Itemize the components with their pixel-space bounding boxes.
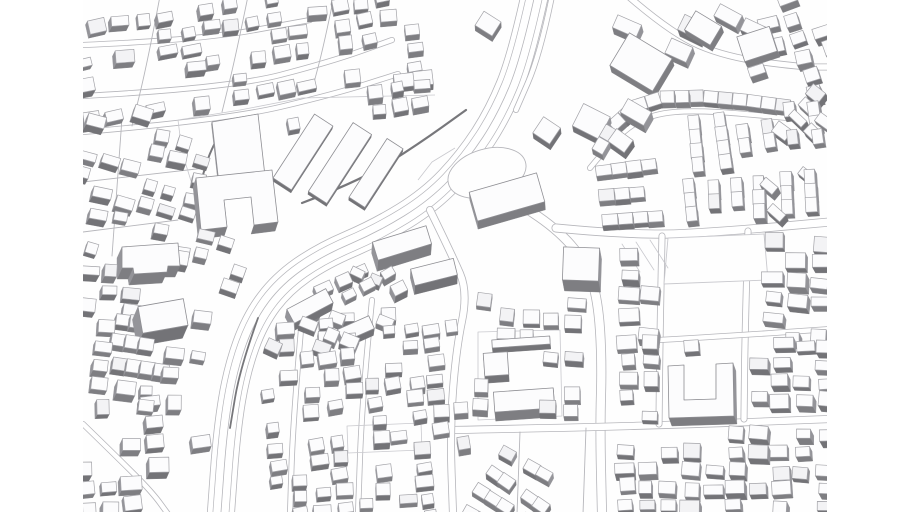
building [543, 313, 558, 330]
building [685, 483, 701, 502]
building [683, 443, 701, 462]
building [384, 376, 401, 396]
building [598, 189, 616, 207]
building [426, 374, 443, 389]
building [99, 286, 117, 301]
building [372, 104, 386, 119]
building [373, 416, 387, 431]
building [376, 483, 391, 501]
building [427, 388, 445, 405]
building [805, 197, 820, 217]
building [108, 15, 129, 32]
building [565, 315, 583, 333]
building [428, 354, 445, 372]
building [642, 335, 659, 355]
building [144, 434, 164, 454]
building [796, 429, 813, 445]
building [680, 500, 702, 512]
building [202, 19, 221, 36]
building [390, 430, 407, 445]
building [771, 480, 793, 499]
building [89, 376, 109, 395]
building [346, 382, 364, 399]
building [476, 292, 492, 311]
building [562, 247, 601, 292]
building [376, 464, 393, 483]
building [642, 411, 658, 424]
building [796, 395, 816, 413]
building [316, 487, 331, 502]
building [120, 439, 141, 457]
building [725, 480, 747, 500]
building [766, 291, 784, 307]
building [692, 157, 706, 178]
building [617, 213, 635, 231]
building [765, 232, 785, 251]
building [415, 474, 434, 492]
building [539, 400, 556, 419]
building [457, 436, 471, 457]
building [112, 211, 128, 226]
building [640, 500, 656, 512]
building [474, 379, 488, 398]
building [616, 335, 638, 354]
building [391, 81, 404, 99]
building [602, 214, 620, 231]
building [483, 352, 509, 384]
building [708, 194, 721, 214]
building [327, 399, 343, 417]
building [317, 351, 337, 370]
building [136, 337, 155, 356]
building [620, 390, 635, 406]
building [292, 475, 307, 492]
building [795, 447, 812, 462]
building [706, 465, 726, 480]
building [704, 485, 725, 499]
building [731, 191, 745, 211]
building [266, 443, 283, 459]
building [620, 372, 639, 390]
building [564, 387, 580, 405]
building [275, 322, 295, 341]
building [771, 374, 791, 392]
building [647, 211, 665, 228]
building [770, 394, 791, 413]
building [272, 44, 291, 64]
building [414, 441, 431, 459]
building [99, 482, 116, 497]
building [620, 248, 639, 266]
building [232, 73, 247, 87]
building [413, 410, 428, 426]
building [293, 491, 307, 508]
building [414, 79, 431, 93]
building [407, 42, 423, 58]
building [343, 365, 362, 385]
building [617, 445, 635, 461]
building [622, 353, 637, 370]
building [661, 500, 678, 512]
building [403, 340, 418, 355]
building [365, 378, 378, 394]
building [362, 33, 378, 51]
building [265, 422, 279, 439]
building [166, 395, 182, 415]
building [113, 380, 137, 403]
building [658, 481, 677, 499]
building [143, 415, 164, 435]
building [661, 447, 679, 463]
building [793, 376, 811, 391]
building [185, 61, 207, 79]
building [434, 404, 450, 423]
building [136, 13, 151, 30]
building [749, 483, 768, 499]
building [404, 24, 419, 41]
building [638, 462, 658, 480]
building [684, 340, 701, 357]
building [245, 16, 259, 32]
building [385, 363, 402, 378]
building [523, 310, 540, 328]
building [421, 493, 434, 510]
building [232, 89, 249, 106]
building [269, 475, 283, 489]
building [564, 405, 579, 421]
building [689, 90, 705, 107]
building [752, 391, 770, 407]
building [260, 389, 274, 404]
building [644, 372, 660, 392]
building [222, 19, 240, 37]
parking-lot [664, 234, 768, 284]
building [787, 293, 810, 314]
building [703, 90, 720, 108]
building [286, 117, 300, 135]
building [191, 310, 213, 331]
building [618, 287, 641, 305]
building [622, 270, 641, 287]
building [567, 298, 587, 313]
building [276, 79, 296, 100]
building [725, 499, 743, 512]
building [432, 421, 449, 440]
building [383, 325, 395, 339]
building [303, 404, 320, 422]
building [407, 389, 424, 407]
building [146, 457, 169, 479]
building [399, 494, 417, 508]
building [338, 502, 354, 512]
building [250, 51, 266, 69]
building [308, 437, 325, 456]
building [221, 0, 237, 15]
building [392, 97, 409, 118]
building [344, 69, 361, 89]
building [792, 467, 810, 484]
building [681, 461, 701, 480]
building [270, 28, 287, 45]
building [787, 272, 810, 294]
building [300, 351, 315, 369]
building [728, 426, 745, 444]
building [423, 337, 440, 354]
building [774, 337, 796, 353]
building [404, 323, 419, 338]
building [753, 204, 767, 225]
building [112, 49, 134, 69]
building [157, 29, 172, 44]
building [373, 430, 390, 450]
building [192, 96, 210, 116]
building [120, 287, 140, 304]
building [749, 425, 771, 446]
building [748, 445, 770, 465]
building [338, 35, 353, 56]
building [122, 495, 143, 512]
building [618, 499, 635, 512]
building [773, 501, 790, 512]
building [340, 347, 355, 366]
building [473, 398, 489, 417]
building [189, 351, 205, 366]
building [761, 272, 784, 288]
building [675, 90, 691, 108]
building [166, 150, 188, 170]
building [331, 0, 349, 17]
building [500, 308, 515, 327]
building [729, 462, 748, 482]
building [359, 498, 373, 512]
building [100, 502, 119, 512]
building [334, 451, 349, 467]
map-scene [71, 0, 842, 512]
building [565, 351, 585, 367]
building [86, 208, 108, 227]
building [750, 358, 771, 375]
building [785, 253, 807, 273]
building [774, 357, 793, 372]
building [454, 402, 469, 420]
building [312, 505, 331, 512]
building [92, 341, 112, 357]
building [154, 11, 173, 29]
building [660, 91, 676, 109]
building [181, 26, 196, 42]
building [643, 355, 661, 370]
building [324, 368, 339, 387]
building [768, 445, 789, 461]
building [189, 434, 211, 454]
building [445, 319, 458, 336]
building [732, 93, 749, 111]
building [619, 308, 641, 327]
building [160, 367, 179, 384]
building [101, 264, 117, 283]
building [269, 459, 288, 477]
building [367, 85, 383, 106]
building [118, 476, 142, 496]
building [796, 341, 816, 356]
building [196, 3, 214, 22]
building [136, 399, 154, 416]
building [330, 467, 348, 485]
building [543, 352, 559, 368]
building [718, 92, 735, 110]
building [288, 25, 308, 41]
building [304, 387, 320, 403]
building [367, 396, 383, 413]
building [620, 477, 637, 495]
map-render [0, 0, 910, 512]
building [310, 453, 329, 471]
map-viewport[interactable] [0, 0, 910, 512]
building [763, 312, 786, 329]
building [380, 9, 398, 27]
building [595, 164, 613, 181]
building [640, 286, 661, 306]
building [356, 11, 373, 29]
building [411, 96, 429, 116]
building [336, 483, 354, 500]
building [279, 370, 298, 386]
building [295, 43, 309, 61]
building [163, 347, 185, 366]
building [95, 399, 110, 418]
building [307, 6, 327, 22]
building [639, 481, 653, 499]
building [266, 12, 282, 28]
